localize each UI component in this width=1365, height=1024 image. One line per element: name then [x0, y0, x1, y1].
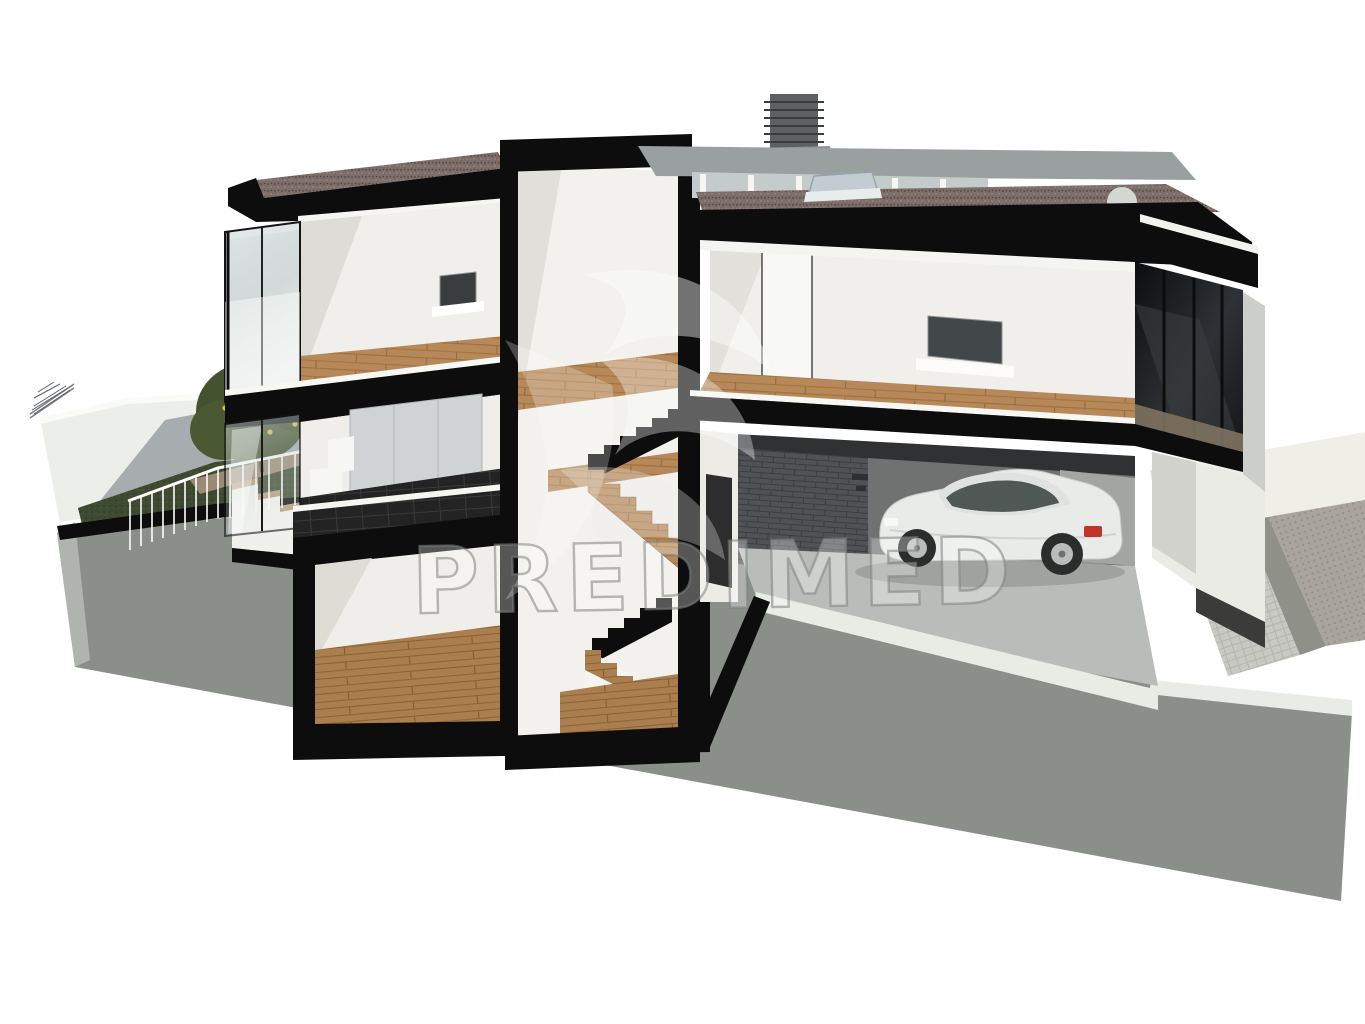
tower-right-band: [678, 150, 700, 760]
section-render: PREDIMED: [0, 0, 1365, 1024]
livingroom-tv: [928, 316, 1002, 364]
wall-sign: [852, 474, 868, 480]
watermark-text: PREDIMED: [411, 518, 1019, 636]
tower-left-band: [500, 144, 518, 752]
render-canvas: PREDIMED: [0, 0, 1365, 1024]
wall-sign: [856, 486, 866, 491]
side-wall-wedge: [1243, 292, 1265, 492]
left-wing: [225, 152, 506, 536]
hub: [1059, 551, 1066, 558]
car-taillight: [1084, 526, 1102, 537]
car-rear-wheel: [1041, 533, 1083, 575]
bedroom-tv: [440, 272, 476, 307]
